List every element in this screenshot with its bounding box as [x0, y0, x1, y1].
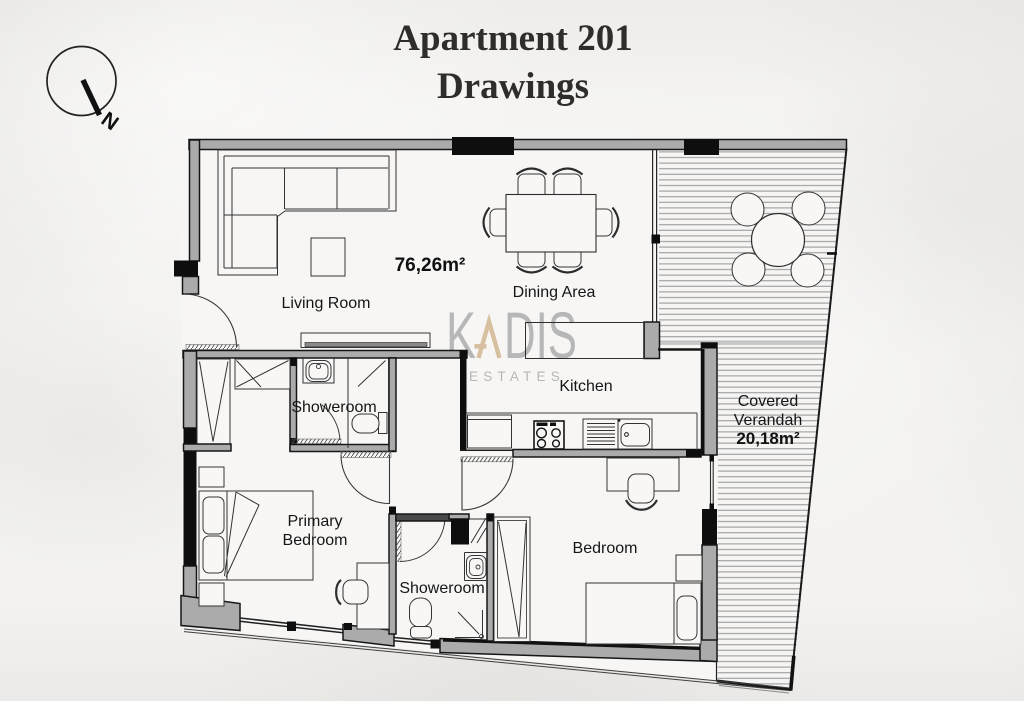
svg-text:76,26m²: 76,26m² — [395, 255, 466, 276]
svg-text:ESTATES: ESTATES — [469, 369, 565, 384]
svg-text:Bedroom: Bedroom — [283, 532, 348, 549]
svg-text:Showeroom: Showeroom — [399, 580, 484, 597]
svg-text:Living Room: Living Room — [282, 295, 371, 312]
svg-text:Primary: Primary — [287, 513, 342, 530]
svg-text:Dining Area: Dining Area — [513, 284, 596, 301]
svg-text:DIS: DIS — [504, 298, 577, 372]
svg-text:20,18m²: 20,18m² — [736, 429, 800, 448]
svg-text:Showeroom: Showeroom — [291, 399, 376, 416]
svg-text:Kitchen: Kitchen — [559, 378, 612, 395]
svg-text:Verandah: Verandah — [734, 412, 803, 429]
svg-text:Covered: Covered — [738, 393, 798, 410]
svg-text:Drawings: Drawings — [437, 66, 589, 107]
svg-text:Bedroom: Bedroom — [573, 540, 638, 557]
svg-text:Apartment 201: Apartment 201 — [393, 18, 632, 59]
